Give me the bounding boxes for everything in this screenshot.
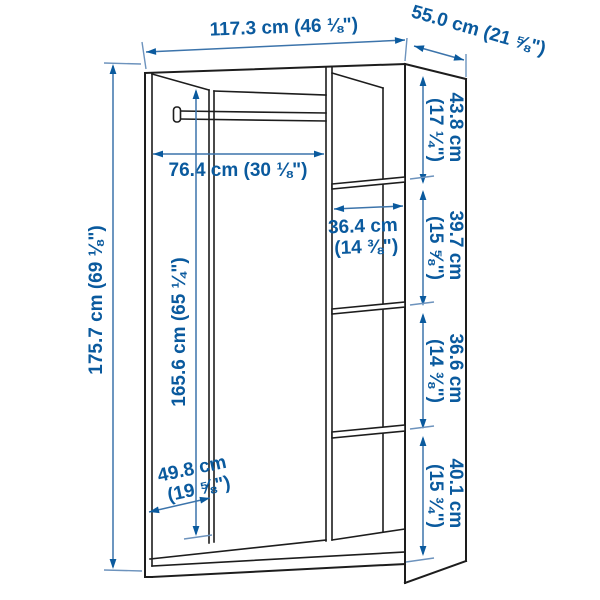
arrowhead-top	[420, 436, 427, 446]
arrowhead-top	[193, 89, 200, 99]
dim-width-overall: 117.3 cm (46 ⅛")	[142, 14, 407, 69]
dim-section-lower-mid: 36.6 cm (14 ⅜")	[410, 313, 466, 429]
arrowhead-right	[393, 203, 403, 210]
shelf-1	[332, 177, 405, 189]
dim-label-section-top-cm: 43.8 cm	[445, 92, 466, 162]
arrowhead-left	[153, 151, 163, 158]
dim-label-section-bottom: 40.1 cm (15 ¾")	[425, 458, 466, 533]
arrowhead-left	[149, 507, 160, 514]
floor-back-edge-right	[332, 529, 405, 540]
extension-tick	[184, 535, 212, 539]
dimension-annotations: 117.3 cm (46 ⅛") 55.0 cm (21 ⅝") 175.7 c…	[86, 1, 548, 571]
extension-tick	[104, 570, 142, 571]
dim-label-interior-depth: 49.8 cm (19 ⅝")	[156, 451, 238, 508]
arrowhead-top	[110, 64, 117, 74]
arrowhead-top	[420, 76, 427, 86]
dim-label-section-top: 43.8 cm (17 ¼")	[425, 92, 466, 167]
extension-tick	[410, 426, 434, 429]
extension-tick	[104, 63, 141, 64]
extension-tick	[406, 558, 434, 562]
dim-label-section-lower-mid: 36.6 cm (14 ⅜")	[425, 333, 466, 408]
wardrobe-drawing	[145, 64, 466, 583]
arrowhead-right	[314, 151, 324, 158]
extension-tick	[405, 38, 407, 61]
arrowhead-top	[420, 313, 427, 323]
dim-label-shelf-width-inches: (14 ⅜")	[334, 236, 399, 259]
rail-top-line	[180, 111, 326, 113]
shelf-2	[332, 302, 405, 314]
arrowhead-bottom	[193, 526, 200, 536]
dim-label-rail-width: 76.4 cm (30 ⅛")	[169, 160, 308, 181]
wardrobe-diagram-canvas: 117.3 cm (46 ⅛") 55.0 cm (21 ⅝") 175.7 c…	[0, 0, 600, 600]
arrowhead-left	[414, 45, 425, 52]
arrowhead-right	[395, 37, 405, 44]
arrowhead-left	[146, 48, 156, 55]
extension-tick	[142, 42, 146, 69]
dim-label-width-overall: 117.3 cm (46 ⅛")	[209, 14, 358, 40]
dim-label-section-upper-mid: 39.7 cm (15 ⅝")	[425, 210, 466, 285]
front-top-edge	[145, 64, 405, 73]
arrowhead-left	[334, 205, 344, 212]
dim-label-section-bottom-cm: 40.1 cm	[445, 458, 466, 528]
arrowhead-bottom	[420, 174, 427, 184]
dim-label-section-lower-mid-cm: 36.6 cm	[445, 333, 466, 403]
arrowhead-bottom	[420, 296, 427, 306]
dim-label-height-overall: 175.7 cm (69 ⅛")	[86, 225, 107, 375]
dim-section-top: 43.8 cm (17 ¼")	[410, 76, 466, 184]
dim-label-shelf-width: 36.4 cm (14 ⅜")	[328, 215, 404, 260]
top-back-edge	[405, 64, 466, 79]
ceiling-back-edge	[214, 91, 326, 95]
arrowhead-bottom	[110, 559, 117, 569]
dim-label-section-upper-mid-inches: (15 ⅝")	[425, 216, 446, 280]
shelf-3	[332, 425, 405, 438]
dim-height-overall: 175.7 cm (69 ⅛")	[86, 63, 142, 571]
dim-shelf-width: 36.4 cm (14 ⅜")	[328, 203, 404, 259]
dim-section-upper-mid: 39.7 cm (15 ⅝")	[410, 190, 466, 306]
dimension-line	[146, 40, 405, 52]
ceiling-left-junction	[152, 74, 209, 90]
dim-rail-width: 76.4 cm (30 ⅛")	[153, 151, 324, 181]
side-bottom-edge	[405, 561, 466, 583]
plinth-bottom-edge	[152, 564, 405, 577]
dim-label-section-top-inches: (17 ¼")	[425, 98, 446, 162]
dim-label-section-lower-mid-inches: (14 ⅜")	[425, 339, 446, 403]
arrowhead-right	[454, 54, 465, 61]
ceiling-right-junction	[332, 73, 383, 88]
floor-back-edge-left	[150, 540, 326, 559]
dim-interior-depth: 49.8 cm (19 ⅝")	[149, 451, 238, 513]
arrowhead-top	[420, 190, 427, 200]
dimension-line	[334, 206, 403, 209]
arrowhead-bottom	[420, 546, 427, 556]
dim-depth-overall: 55.0 cm (21 ⅝")	[409, 1, 548, 77]
dim-label-shelf-width-cm: 36.4 cm	[328, 215, 398, 238]
dim-section-bottom: 40.1 cm (15 ¾")	[406, 436, 466, 562]
dimension-diagram: 117.3 cm (46 ⅛") 55.0 cm (21 ⅝") 175.7 c…	[0, 0, 600, 600]
dim-label-section-upper-mid-cm: 39.7 cm	[445, 210, 466, 280]
dim-label-section-bottom-inches: (15 ¾")	[425, 464, 446, 528]
rail-end-cap	[174, 107, 181, 122]
rail-bottom-line	[180, 119, 326, 121]
dim-label-interior-height: 165.6 cm (65 ¼")	[169, 257, 190, 407]
